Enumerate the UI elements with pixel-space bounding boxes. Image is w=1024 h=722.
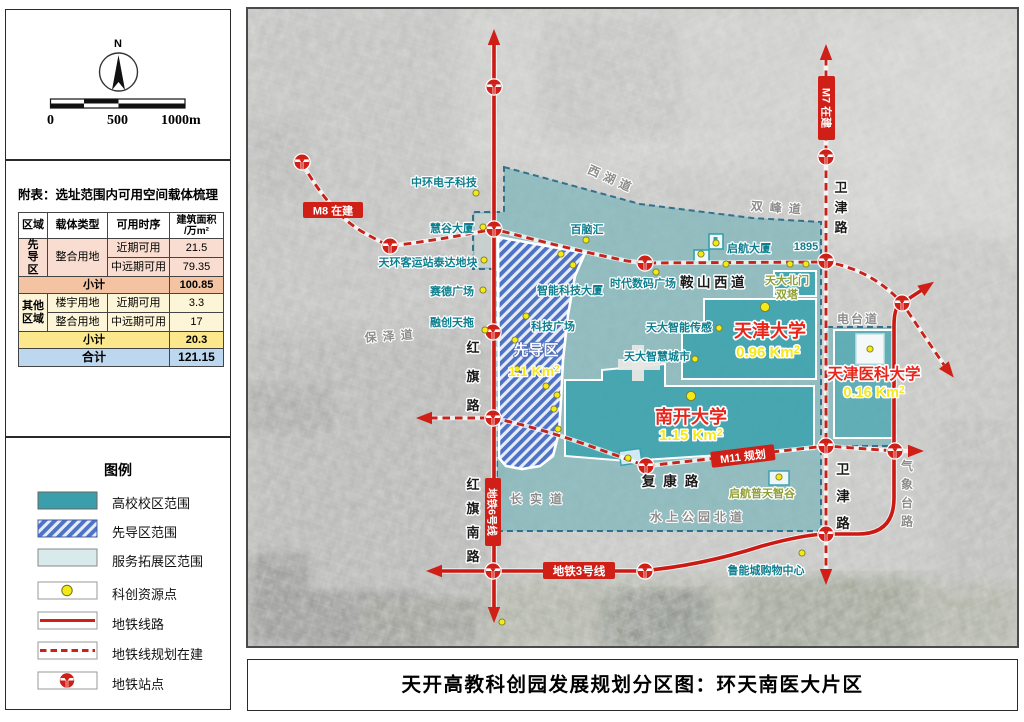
svg-text:智能科技大厦: 智能科技大厦 (537, 283, 604, 297)
svg-text:赛德广场: 赛德广场 (429, 284, 474, 298)
svg-text:1.15 Km2: 1.15 Km2 (659, 427, 723, 444)
svg-text:象: 象 (901, 477, 913, 492)
svg-text:路: 路 (466, 549, 480, 564)
svg-text:中环电子科技: 中环电子科技 (411, 175, 478, 189)
svg-text:0.16 Km2: 0.16 Km2 (843, 385, 905, 401)
svg-text:卫: 卫 (834, 180, 847, 195)
svg-text:M8 在建: M8 在建 (313, 204, 354, 218)
svg-text:百脑汇: 百脑汇 (571, 222, 604, 236)
svg-text:津: 津 (834, 200, 847, 215)
svg-text:长实道: 长实道 (510, 491, 570, 506)
svg-text:科技广场: 科技广场 (531, 319, 575, 333)
svg-text:电台道: 电台道 (837, 311, 879, 326)
svg-text:天大智能传感: 天大智能传感 (646, 320, 712, 334)
svg-text:0.96 Km2: 0.96 Km2 (736, 344, 800, 361)
svg-text:台: 台 (901, 495, 913, 510)
svg-text:路: 路 (466, 398, 480, 413)
svg-text:鲁能城购物中心: 鲁能城购物中心 (728, 563, 805, 577)
svg-text:1.1 Km2: 1.1 Km2 (508, 363, 560, 379)
svg-text:路: 路 (836, 515, 850, 531)
svg-text:水上公园北道: 水上公园北道 (650, 509, 746, 524)
svg-text:慧谷大厦: 慧谷大厦 (430, 221, 475, 235)
svg-text:启航大厦: 启航大厦 (727, 241, 772, 255)
svg-text:红: 红 (466, 477, 479, 492)
svg-text:红: 红 (466, 340, 479, 355)
svg-text:天津医科大学: 天津医科大学 (827, 364, 920, 383)
svg-text:M7 在建: M7 在建 (820, 88, 834, 129)
svg-text:地铁3号线: 地铁3号线 (553, 564, 606, 578)
svg-text:天大智慧城市: 天大智慧城市 (624, 349, 690, 363)
svg-text:天大北门: 天大北门 (765, 273, 809, 287)
svg-text:卫: 卫 (836, 462, 850, 477)
svg-text:先导区: 先导区 (513, 341, 558, 359)
svg-text:旗: 旗 (466, 369, 479, 384)
svg-text:津: 津 (836, 488, 850, 504)
svg-text:旗: 旗 (466, 501, 479, 516)
svg-text:地铁6号线: 地铁6号线 (486, 488, 499, 536)
svg-text:路: 路 (901, 514, 914, 529)
svg-text:气: 气 (900, 458, 913, 473)
svg-text:路: 路 (834, 220, 848, 235)
svg-text:双塔: 双塔 (776, 287, 799, 301)
svg-text:启航普天智谷: 启航普天智谷 (729, 486, 796, 500)
svg-text:1895: 1895 (794, 241, 818, 253)
svg-text:融创天拖: 融创天拖 (430, 315, 474, 329)
svg-text:南开大学: 南开大学 (655, 406, 727, 427)
svg-text:复康路: 复康路 (641, 473, 707, 489)
svg-text:鞍山西道: 鞍山西道 (680, 274, 748, 290)
svg-text:天津大学: 天津大学 (734, 320, 806, 341)
svg-text:时代数码广场: 时代数码广场 (610, 276, 676, 290)
svg-text:南: 南 (466, 525, 479, 540)
svg-text:天环客运站泰达地块: 天环客运站泰达地块 (379, 255, 479, 269)
